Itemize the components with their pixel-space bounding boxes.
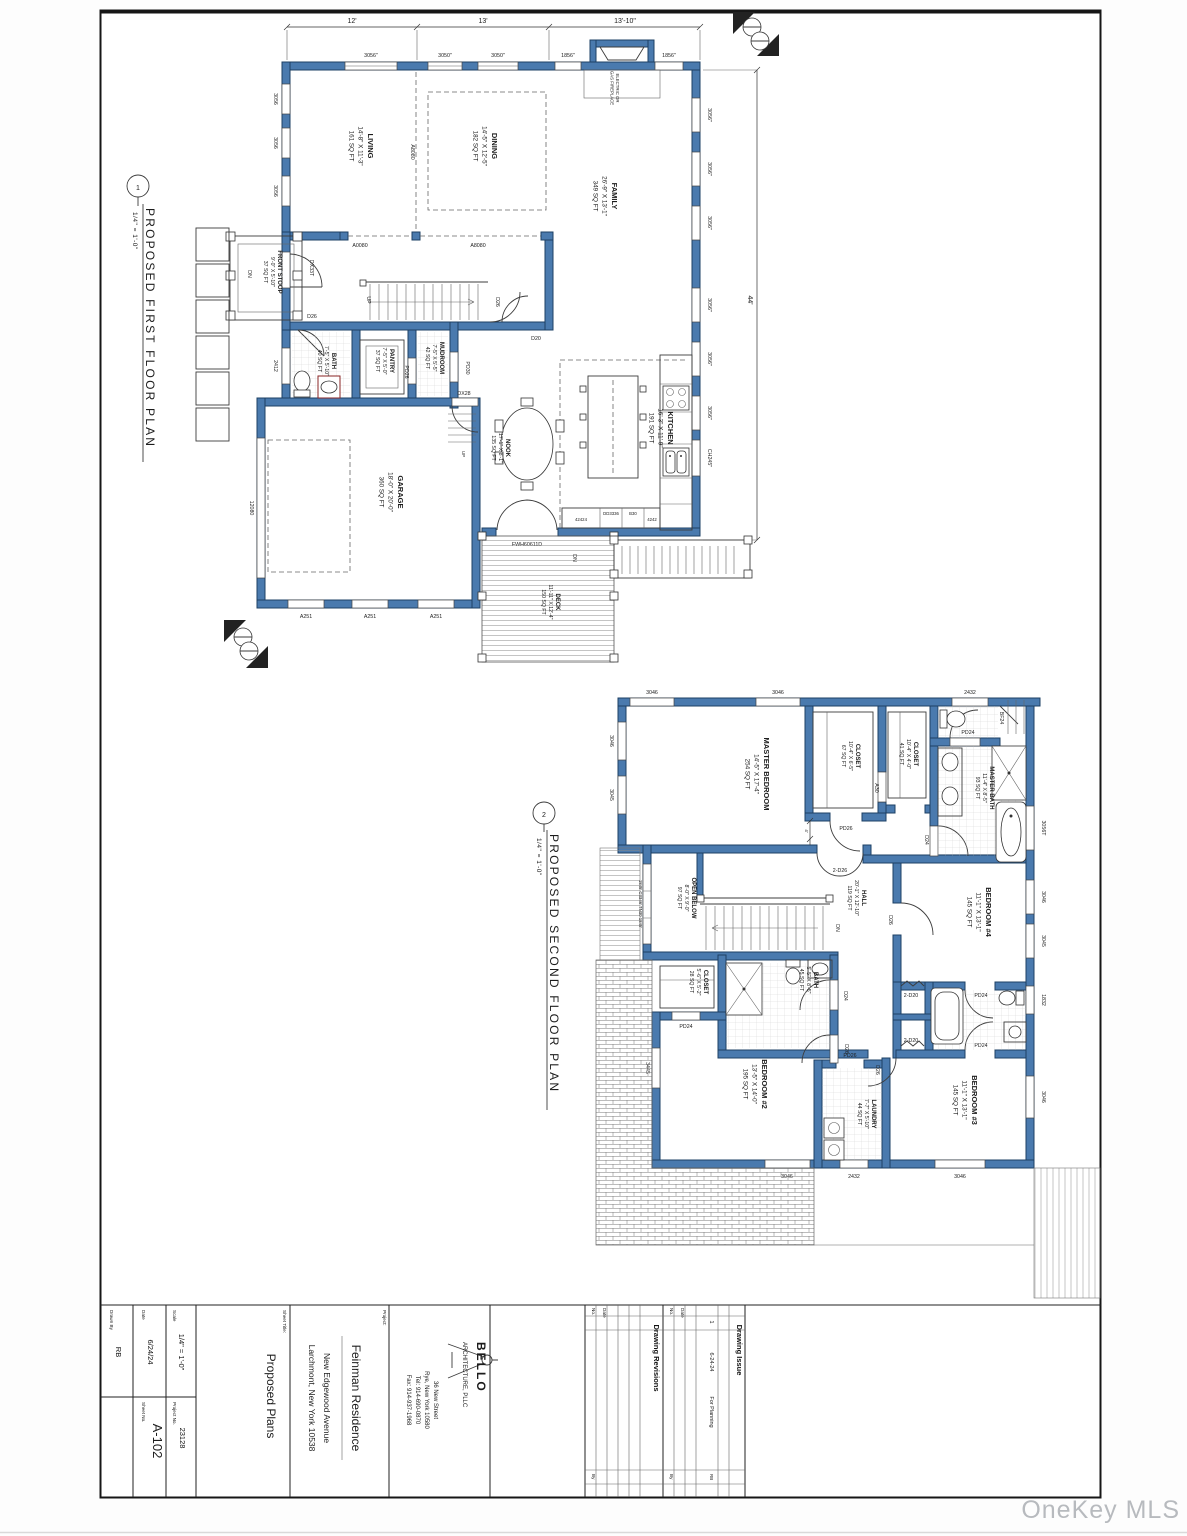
window-tag: 3046 [646, 690, 658, 696]
window-tag: 3050" [438, 53, 452, 59]
range-icon [663, 386, 689, 410]
svg-text:BEDROOM #3: BEDROOM #3 [970, 1075, 979, 1125]
fireplace-note: ELECTRIC OR GAS FIREPLACE [610, 71, 621, 105]
svg-text:13'-5" X 14'-0": 13'-5" X 14'-0" [751, 1064, 758, 1104]
svg-text:45 SQ FT: 45 SQ FT [798, 969, 804, 992]
opening-tag: A8080 [409, 144, 415, 159]
svg-text:KITCHEN: KITCHEN [666, 411, 675, 444]
cabinet-tag: B30 [629, 511, 637, 516]
svg-text:41 SQ FT: 41 SQ FT [898, 743, 904, 766]
floor-plan-svg: 12' 13' 13'-10" 44' 3056" [0, 0, 1187, 1536]
svg-text:9'-0" X 5'-10": 9'-0" X 5'-10" [269, 257, 275, 287]
svg-text:11'-11" X 12'-4": 11'-11" X 12'-4" [547, 585, 553, 620]
window-tag: 3056" [364, 53, 378, 59]
window-tag: 3056" [706, 352, 712, 366]
window-tag: 3045 [1040, 935, 1046, 947]
window-tag: 3050" [491, 53, 505, 59]
svg-text:PANTRY: PANTRY [388, 349, 394, 373]
svg-text:145 SQ FT: 145 SQ FT [952, 1085, 959, 1116]
svg-text:254 SQ FT: 254 SQ FT [744, 759, 751, 790]
door-tag: DX28 [457, 391, 470, 397]
svg-text:40 SQ FT: 40 SQ FT [316, 350, 322, 373]
svg-text:CLOSET: CLOSET [702, 970, 708, 995]
room-label-kitchen: KITCHEN 16'-3" X 11'-9" 191 SQ FT [648, 408, 676, 447]
svg-text:OPEN BELOW: OPEN BELOW [690, 877, 696, 918]
room-label-wic2: CLOSET 10'-4" X 4'-0" 41 SQ FT [898, 739, 918, 769]
svg-text:119 SQ FT: 119 SQ FT [846, 886, 852, 912]
cabinet-tag: DD3336 [603, 511, 619, 516]
svg-text:BEDROOM #2: BEDROOM #2 [760, 1059, 769, 1109]
col-date: Date [680, 1308, 685, 1318]
toilet-icon [1016, 991, 1024, 1005]
sink-icon [1009, 1026, 1021, 1038]
sheet-no-value: A-102 [150, 1424, 165, 1459]
svg-text:7'-5" X 5'-5": 7'-5" X 5'-5" [431, 344, 437, 371]
plan1-number: 1 [136, 185, 140, 192]
window-tag: 3046 [772, 690, 784, 696]
svg-text:7'-5" X 5'-10": 7'-5" X 5'-10" [323, 346, 329, 376]
project-no-value: 23128 [178, 1428, 187, 1449]
svg-text:8'-0" X 9'-0": 8'-0" X 9'-0" [683, 884, 689, 911]
room-label-garage: GARAGE 18'-0" X 20'-0" 360 SQ FT [378, 472, 406, 512]
svg-text:LAUNDRY: LAUNDRY [870, 1099, 876, 1128]
svg-text:360 SQ FT: 360 SQ FT [378, 477, 385, 508]
window-tag: 3056" [706, 162, 712, 176]
onekey-mls-watermark: OneKey MLS [1021, 1496, 1180, 1524]
door-tag: PD26 [843, 1053, 856, 1059]
dryer-icon [824, 1140, 844, 1160]
architect-firm: ARCHITECTURE, PLLC [461, 1342, 467, 1408]
plan1-scale: 1/4" = 1'-0" [131, 212, 138, 250]
svg-text:161 SQ FT: 161 SQ FT [348, 131, 355, 162]
svg-text:14'-5" X 12'-5": 14'-5" X 12'-5" [481, 126, 488, 166]
sink-icon [942, 787, 958, 805]
dn-label: DN [246, 270, 252, 278]
window-tag: A251 [430, 614, 442, 620]
sink-icon [942, 753, 958, 771]
revisions-title: Drawing Revisions [652, 1324, 661, 1391]
col-no: No. [669, 1308, 674, 1315]
drawn-by-label: Drawn By [109, 1310, 114, 1331]
window-tag: 3046 [954, 1174, 966, 1180]
dim-4ft: 4' [804, 829, 809, 832]
svg-text:135 SQ FT: 135 SQ FT [490, 435, 496, 461]
svg-text:42 SQ FT: 42 SQ FT [424, 347, 430, 370]
cabinet-tag: 42424 [575, 517, 588, 522]
svg-text:93 SQ FT: 93 SQ FT [974, 777, 980, 800]
door-tag: D24 [842, 991, 848, 1001]
watermark: OneKey MLS [0, 1496, 1187, 1533]
window-tag: 2412 [272, 360, 278, 372]
window-tag: A251 [300, 614, 312, 620]
toilet-icon [940, 710, 947, 728]
kitchen-sink-icon [663, 448, 689, 476]
svg-text:MASTER BEDROOM: MASTER BEDROOM [762, 738, 771, 811]
svg-text:DINING: DINING [490, 133, 499, 159]
svg-text:11'-1" X 13'-1": 11'-1" X 13'-1" [961, 1080, 968, 1119]
issue-desc: For Planning [708, 1396, 714, 1427]
svg-text:349 SQ FT: 349 SQ FT [592, 181, 599, 212]
svg-text:GARAGE: GARAGE [396, 476, 405, 509]
dim-44: 44' [746, 295, 753, 304]
issue-no: 1 [708, 1320, 714, 1323]
svg-text:FAMILY: FAMILY [610, 183, 619, 210]
svg-text:CLOSET: CLOSET [854, 744, 860, 769]
window-tag: 3046 [1040, 1091, 1046, 1103]
garage-door-tag: 12080 [248, 501, 254, 516]
up-label: UP [461, 451, 466, 457]
sheet-no-label: Sheet No. [141, 1402, 146, 1422]
sheet-title-label: Sheet Title: [282, 1310, 287, 1333]
issue-title: Drawing Issue [735, 1325, 744, 1376]
window-tag: 3056 [272, 185, 278, 197]
svg-text:195 SQ FT: 195 SQ FT [742, 1069, 749, 1100]
svg-text:145 SQ FT: 145 SQ FT [966, 897, 973, 928]
svg-text:11'-4" X 8'-5": 11'-4" X 8'-5" [981, 773, 987, 803]
tub-icon [931, 988, 963, 1044]
svg-text:BATH: BATH [330, 353, 336, 369]
window-tag: CH245" [706, 449, 712, 467]
col-by: By [669, 1474, 674, 1480]
svg-text:67 SQ FT: 67 SQ FT [840, 745, 846, 768]
toilet-icon [786, 960, 800, 967]
dn-label: DN [571, 554, 577, 562]
architect-name: BELLO [474, 1342, 488, 1393]
window-tag: A251 [364, 614, 376, 620]
door-tag: 2-D26 [833, 868, 847, 874]
shower-icon [992, 746, 1026, 800]
svg-text:28 SQ FT: 28 SQ FT [688, 971, 694, 994]
project-name: Feinman Residence [349, 1345, 363, 1452]
plan1-title-text: PROPOSED FIRST FLOOR PLAN [143, 208, 157, 448]
door-tag: PD30 [464, 361, 470, 374]
room-label-laundry: LAUNDRY 7'-7" X 5'-10" 44 SQ FT [856, 1099, 876, 1129]
svg-text:11'-1" X 13'-1": 11'-1" X 13'-1" [975, 892, 982, 931]
svg-text:182 SQ FT: 182 SQ FT [472, 131, 479, 162]
scanned-drawing-sheet: 12' 13' 13'-10" 44' 3056" [0, 0, 1187, 1536]
window-tag: 3056 [272, 137, 278, 149]
svg-text:NOOK: NOOK [504, 439, 510, 458]
door-tag: 2-D20 [904, 1038, 918, 1044]
cabinet-tag: 4242 [647, 517, 657, 522]
svg-text:26'-9" X 13'-1": 26'-9" X 13'-1" [601, 176, 608, 216]
issue-by: RB [709, 1474, 714, 1480]
window-tag: 2432 [848, 1174, 860, 1180]
svg-text:BEDROOM #4: BEDROOM #4 [984, 887, 993, 937]
door-tag: D20 [531, 336, 541, 342]
svg-text:18'-0" X 20'-0": 18'-0" X 20'-0" [387, 472, 394, 512]
window-tag: 3046 [608, 735, 614, 747]
door-tag: D26 [887, 915, 893, 925]
col-no: No. [591, 1308, 596, 1315]
window-tag: 3056 [272, 93, 278, 105]
svg-text:191 SQ FT: 191 SQ FT [648, 413, 655, 444]
svg-text:ELECTRIC OR: ELECTRIC OR [615, 74, 620, 103]
svg-text:CLOSET: CLOSET [912, 742, 918, 767]
svg-text:17'-1" X 8'-1": 17'-1" X 8'-1" [497, 433, 503, 463]
window-tag: 1856" [561, 53, 575, 59]
architect-addr2: Rye, New York 10580 [423, 1371, 429, 1429]
stairs-main: UP [360, 280, 488, 320]
opening-tag: A8080 [470, 243, 485, 249]
svg-text:DECK: DECK [554, 593, 560, 611]
svg-text:10'-4" X 6'-5": 10'-4" X 6'-5" [847, 741, 853, 771]
door-tag: BF24 [998, 712, 1004, 725]
plan2-scale: 1/4" = 1'-0" [535, 838, 542, 876]
svg-text:10'-4" X 4'-0": 10'-4" X 4'-0" [905, 739, 911, 769]
svg-text:MASTER BATH: MASTER BATH [988, 766, 994, 809]
washer-icon [824, 1118, 844, 1138]
door-tag: DX33T [308, 260, 314, 277]
door-tag: A30 [873, 783, 879, 792]
svg-text:37 SQ FT: 37 SQ FT [374, 350, 380, 373]
drawn-by-value: RB [114, 1347, 123, 1357]
svg-text:14'-8" X 11'-3": 14'-8" X 11'-3" [357, 126, 364, 165]
project-addr2: Larchmont, New York 10538 [307, 1345, 317, 1452]
room-label-wic1: CLOSET 10'-4" X 6'-5" 67 SQ FT [840, 741, 860, 771]
scale-value: 1/4" = 1'-0" [177, 1334, 186, 1371]
project-no-label: Project No. [172, 1402, 177, 1425]
door-tag: PD26 [839, 826, 852, 832]
svg-text:150 SQ FT: 150 SQ FT [540, 589, 546, 615]
scale-label: Scale [172, 1310, 177, 1322]
svg-text:14'-5" X 17'-4": 14'-5" X 17'-4" [753, 754, 760, 794]
svg-text:97 SQ FT: 97 SQ FT [676, 887, 682, 910]
toilet-icon [294, 371, 310, 391]
svg-text:5'-6" X 5'-2": 5'-6" X 5'-2" [695, 968, 701, 995]
architect-tel: Tel: 914-690-0870 [414, 1376, 420, 1425]
svg-text:HALL: HALL [860, 890, 866, 906]
plan2-number: 2 [542, 812, 546, 819]
window-tag: 3056" [706, 108, 712, 122]
window-tag: 2432 [964, 690, 976, 696]
window-tag: 3056" [706, 216, 712, 230]
plan2-title-text: PROPOSED SECOND FLOOR PLAN [547, 834, 561, 1093]
dim-12: 12' [347, 18, 356, 25]
svg-text:7'-7" X 5'-10": 7'-7" X 5'-10" [863, 1099, 869, 1129]
room-label-pantry: PANTRY 7'-5" X 5'-0" 37 SQ FT [374, 347, 394, 374]
issue-date: 6-24-24 [708, 1353, 714, 1372]
room-label-closet2f: CLOSET 5'-6" X 5'-2" 28 SQ FT [688, 968, 708, 995]
col-by: By [591, 1474, 596, 1480]
opening-tag: A0080 [352, 243, 367, 249]
window-tag: 3046 [1040, 891, 1046, 903]
project-addr1: New Edgewood Avenue [322, 1353, 332, 1443]
window-tag: 1832 [1040, 994, 1046, 1006]
door-tag: PD24 [679, 1024, 692, 1030]
dim-13-10: 13'-10" [614, 18, 636, 25]
window-tag: 3056" [706, 406, 712, 420]
svg-text:20'-1" X 12'-10": 20'-1" X 12'-10" [853, 880, 859, 916]
shower-icon [726, 963, 762, 1015]
svg-text:LIVING: LIVING [366, 133, 375, 158]
svg-text:5'-5" X 8'-5": 5'-5" X 8'-5" [805, 966, 811, 993]
svg-text:GAS FIREPLACE: GAS FIREPLACE [610, 71, 615, 105]
date-value: 6/24/24 [146, 1339, 155, 1364]
svg-text:44 SQ FT: 44 SQ FT [856, 1103, 862, 1126]
svg-text:MUDROOM: MUDROOM [438, 342, 444, 374]
tub-icon [996, 802, 1026, 862]
door-tag: D26 [307, 314, 317, 320]
svg-text:16'-3" X 11'-9": 16'-3" X 11'-9" [657, 408, 664, 447]
dn-label: DN [834, 924, 840, 932]
window-tag: 1856" [662, 53, 676, 59]
door-tag: D24 [923, 835, 929, 845]
project-label: Project: [382, 1310, 387, 1326]
svg-text:37 SQ FT: 37 SQ FT [262, 261, 268, 284]
window-tag: 3045 [608, 789, 614, 801]
door-tag: 2-D20 [904, 993, 918, 999]
window-tag: 3056T [1040, 820, 1046, 836]
up-label: UP [365, 296, 371, 304]
sheet-title-value: Proposed Plans [264, 1354, 278, 1439]
dim-13: 13' [478, 18, 487, 25]
svg-text:7'-5" X 5'-0": 7'-5" X 5'-0" [381, 347, 387, 374]
architect-addr1: 36 New Street [432, 1381, 438, 1419]
jj-bath-fixtures [931, 988, 1026, 1050]
svg-text:BATH: BATH [812, 972, 818, 988]
window-tag: 3056" [706, 298, 712, 312]
svg-text:FRONT STOOP: FRONT STOOP [276, 250, 282, 293]
door-tag: D26 [494, 297, 500, 307]
date-label: Date [141, 1310, 146, 1320]
col-date: Date [602, 1308, 607, 1318]
architect-fax: Fax: 914-937-1968 [405, 1375, 411, 1426]
